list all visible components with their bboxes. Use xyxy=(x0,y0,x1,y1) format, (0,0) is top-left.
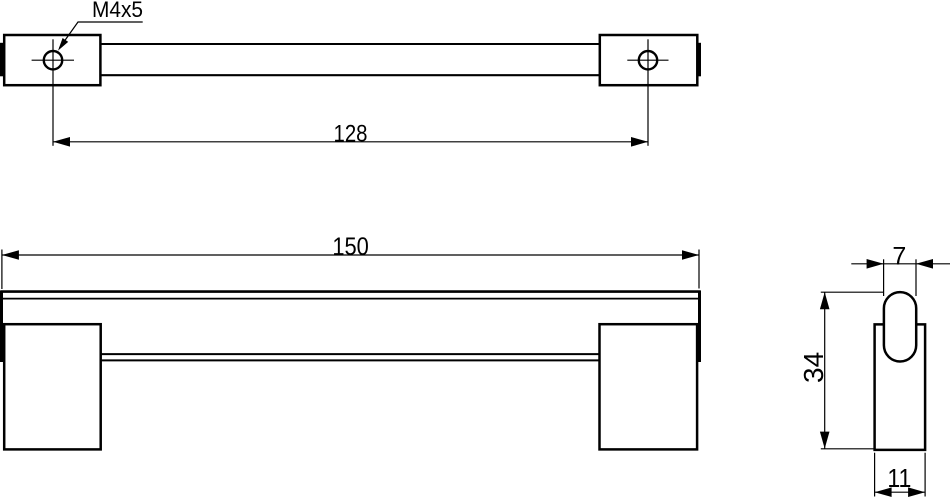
svg-text:150: 150 xyxy=(332,233,369,261)
svg-text:M4x5: M4x5 xyxy=(92,0,143,22)
svg-text:128: 128 xyxy=(334,120,368,147)
svg-text:11: 11 xyxy=(887,463,911,493)
svg-text:34: 34 xyxy=(798,352,829,383)
svg-text:7: 7 xyxy=(892,243,906,271)
